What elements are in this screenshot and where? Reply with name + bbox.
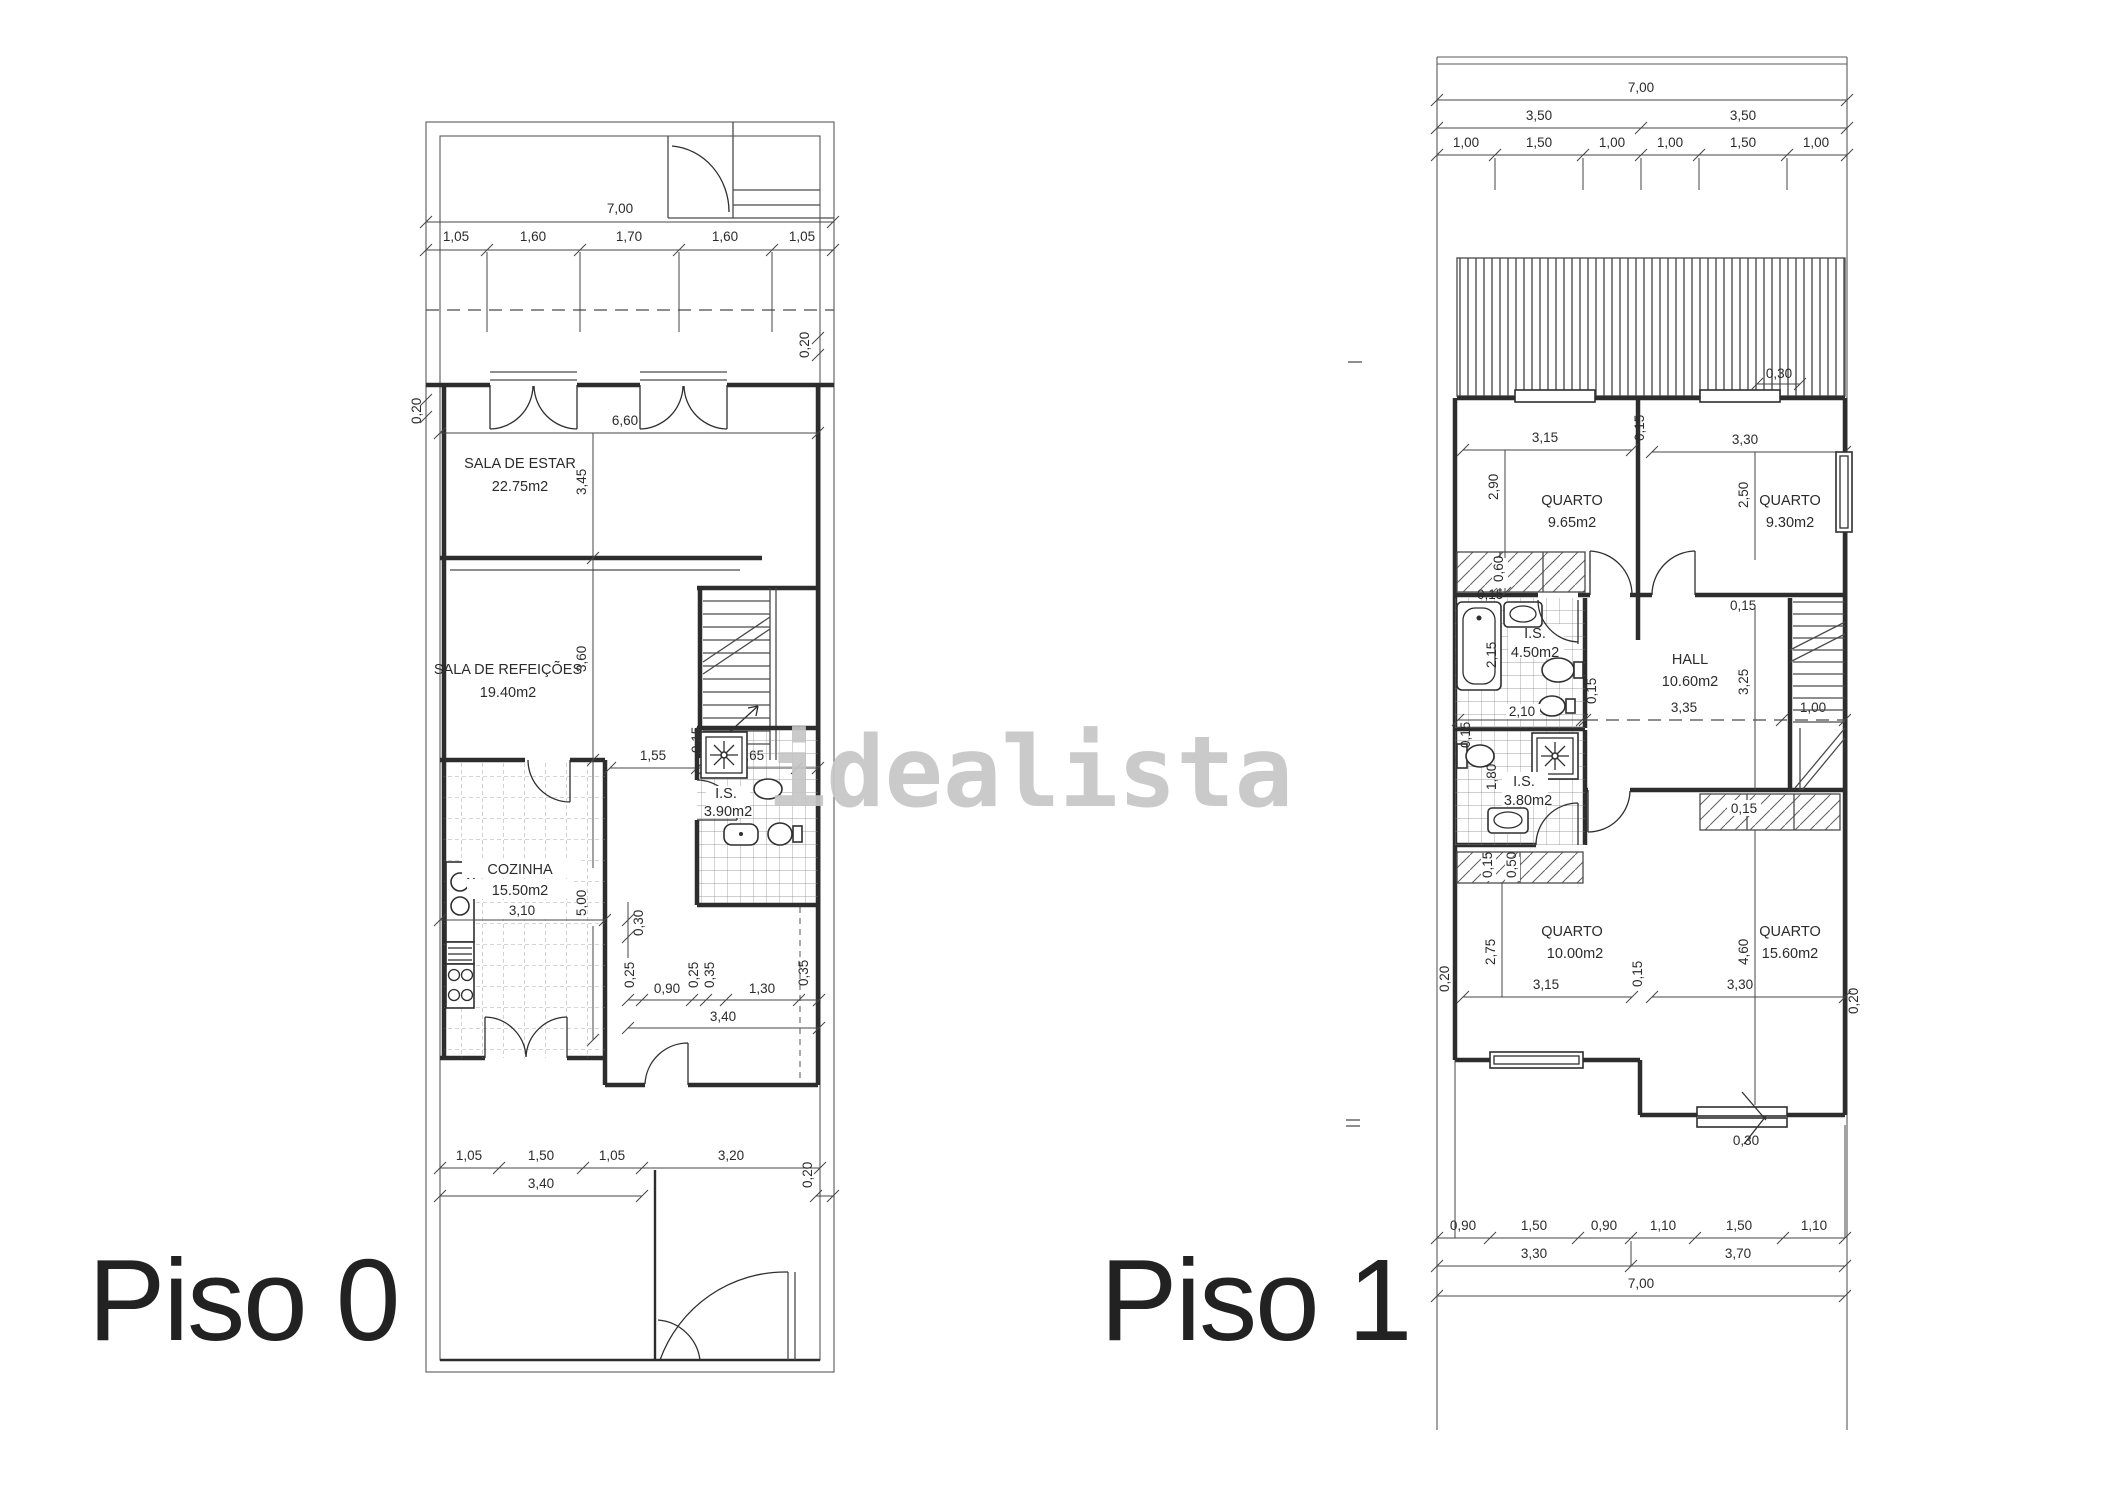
dim-label: 1,05 [443, 229, 469, 244]
window-icon [1490, 1052, 1583, 1068]
room-area: 3.90m2 [704, 804, 752, 820]
room-area: 3.80m2 [1504, 793, 1552, 809]
room-area: 9.30m2 [1766, 515, 1814, 531]
dim-label: 3,30 [1727, 977, 1753, 992]
sink-icon [1504, 602, 1542, 627]
room-label: I.S. [715, 786, 737, 802]
dim-label: 3,25 [1736, 669, 1751, 695]
dim-label: 0,15 [1477, 587, 1503, 602]
dim-label: 1,00 [1657, 135, 1683, 150]
window-icon [1836, 452, 1852, 532]
dim-label: 0,90 [1450, 1218, 1476, 1233]
piso0-title: Piso 0 [88, 1235, 398, 1365]
dim-label: 2,10 [1509, 704, 1535, 719]
room-area: 19.40m2 [480, 685, 536, 701]
dim-label: 0,15 [1458, 722, 1473, 748]
dim-label: 2,75 [1483, 939, 1498, 965]
piso1-quarto4: QUARTO 15.60m2 4,60 3,30 0,20 0,30 [1646, 830, 1861, 1148]
piso0-french-doors [490, 372, 727, 429]
piso1-balcony: 0,30 [1457, 258, 1845, 402]
piso0-patio: 1,05 1,50 1,05 3,20 3,40 0,20 [434, 1148, 839, 1360]
dim-label: 1,10 [1650, 1218, 1676, 1233]
piso1-stairs [1790, 598, 1845, 790]
piso1-closet4: 0,15 [1588, 790, 1840, 832]
dim-label: 0,35 [702, 962, 717, 988]
piso1-bathroom2: I.S. 3.80m2 0,15 1,80 [1455, 722, 1585, 845]
room-label: HALL [1672, 652, 1708, 668]
dim-label: 0,50 [1504, 852, 1519, 878]
dim-label: 1,50 [1521, 1218, 1547, 1233]
dim-label: 1,70 [616, 229, 642, 244]
dim-label: 0,15 [1480, 852, 1495, 878]
dim-label: 7,00 [1628, 80, 1654, 95]
dim-label: 1,50 [528, 1148, 554, 1163]
dim-label: 1,05 [599, 1148, 625, 1163]
room-label: SALA DE REFEIÇÕES [434, 661, 582, 678]
dim-label: 0,25 [622, 962, 637, 988]
piso1-closet1: 0,60 [1457, 552, 1585, 592]
dim-label: 1,55 [640, 748, 666, 763]
dim-label: 3,30 [1732, 432, 1758, 447]
dim-label: 0,60 [1491, 556, 1506, 582]
room-area: 15.50m2 [492, 883, 548, 899]
piso0-kitchen: COZINHA 15.50m2 3,10 [434, 760, 611, 1058]
piso1-title: Piso 1 [1100, 1235, 1410, 1365]
dim-label: 0,20 [1846, 988, 1861, 1014]
piso1-quarto3: QUARTO 10.00m2 2,75 3,15 0,15 0,20 [1437, 883, 1645, 1068]
floorplan-drawing: 7,00 1,05 1,60 1,70 1,60 1,05 0,20 0,20 … [0, 0, 2114, 1510]
dim-label: 1,50 [1730, 135, 1756, 150]
dim-label: 0,90 [1591, 1218, 1617, 1233]
dim-label: 3,50 [1730, 108, 1756, 123]
dim-label: 3,45 [574, 469, 589, 495]
dim-label: 0,25 [686, 962, 701, 988]
dim-label: 1,00 [1800, 700, 1826, 715]
room-label: COZINHA [487, 862, 553, 878]
dim-label: 4,60 [1736, 939, 1751, 965]
dim-label: 1,00 [1599, 135, 1625, 150]
dim-label: 3,15 [1532, 430, 1558, 445]
dim-label: 0,15 [1632, 415, 1647, 441]
piso1-bathroom1: I.S. 4.50m2 0,15 2,15 2,10 0,15 [1452, 587, 1599, 728]
dim-label: 0,20 [1437, 966, 1452, 992]
dim-label: 1,50 [1526, 135, 1552, 150]
room-label: I.S. [1513, 774, 1535, 790]
dim-label: 3,30 [1521, 1246, 1547, 1261]
dim-label: 1,80 [1484, 764, 1499, 790]
dim-label: 1,60 [520, 229, 546, 244]
dim-label: 0,20 [409, 398, 424, 424]
dim-label: 0,90 [654, 981, 680, 996]
dim-label: 1,00 [1803, 135, 1829, 150]
dim-label: 0,15 [1584, 678, 1599, 704]
dim-label: 1,60 [712, 229, 738, 244]
sink-icon [1488, 808, 1528, 833]
dim-label: 1,30 [749, 981, 775, 996]
piso1-quarto2: 3,30 2,50 QUARTO 9.30m2 [1646, 432, 1852, 595]
dim-label: 6,60 [612, 413, 638, 428]
dim-label: 3,50 [1526, 108, 1552, 123]
room-label: QUARTO [1541, 924, 1603, 940]
dim-label: 3,40 [710, 1009, 736, 1024]
dim-label: 0,30 [631, 910, 646, 936]
dim-label: 3,20 [718, 1148, 744, 1163]
dim-label: 3,40 [528, 1176, 554, 1191]
piso0-top-dims: 7,00 1,05 1,60 1,70 1,60 1,05 [420, 201, 839, 332]
dim-label: 3,15 [1533, 977, 1559, 992]
piso1-closet3: 0,15 0,50 [1457, 852, 1583, 883]
room-label: QUARTO [1759, 493, 1821, 509]
dim-label: 2,15 [1484, 642, 1499, 668]
window-icon [1697, 1107, 1787, 1116]
room-label: QUARTO [1759, 924, 1821, 940]
shower-icon [701, 732, 747, 778]
room-label: QUARTO [1541, 493, 1603, 509]
dim-label: 7,00 [607, 201, 633, 216]
room-area: 10.60m2 [1662, 674, 1718, 690]
dim-label: 1,05 [789, 229, 815, 244]
piso0-lower-dims: 0,30 0,25 0,90 0,25 0,35 1,30 0,35 3,40 [622, 902, 825, 1085]
dim-label: 7,00 [1628, 1276, 1654, 1291]
room-label: I.S. [1524, 626, 1546, 642]
dim-label: 0,15 [1630, 961, 1645, 987]
dim-label: 1,50 [1726, 1218, 1752, 1233]
dim-label: 1,05 [456, 1148, 482, 1163]
dim-label: 0,30 [1733, 1133, 1759, 1148]
dim-label: 0,15 [1730, 598, 1756, 613]
piso1-hall: HALL 10.60m2 0,15 3,35 1,00 3,25 [1579, 598, 1851, 790]
dim-label: 0,35 [796, 960, 811, 986]
dim-label: 0,30 [1766, 366, 1792, 381]
dim-label: 0,20 [797, 332, 812, 358]
dim-label: 1,10 [1801, 1218, 1827, 1233]
dim-label: 3,10 [509, 903, 535, 918]
dim-label: 2,90 [1486, 474, 1501, 500]
room-label: SALA DE ESTAR [464, 456, 576, 472]
piso1-plan: 7,00 3,50 3,50 1,00 1,50 1,00 1,00 1,50 … [1346, 57, 1861, 1430]
room-area: 9.65m2 [1548, 515, 1596, 531]
dim-label: 1,00 [1453, 135, 1479, 150]
dim-label: 2,50 [1736, 482, 1751, 508]
room-area: 22.75m2 [492, 479, 548, 495]
dim-label: 3,70 [1725, 1246, 1751, 1261]
room-area: 10.00m2 [1547, 946, 1603, 962]
floorplan-canvas: 7,00 1,05 1,60 1,70 1,60 1,05 0,20 0,20 … [0, 0, 2114, 1510]
dim-label: 0,20 [800, 1162, 815, 1188]
dim-label: 0,15 [1731, 801, 1757, 816]
room-area: 15.60m2 [1762, 946, 1818, 962]
dim-label: 3,35 [1671, 700, 1697, 715]
idealista-watermark: idealista [768, 716, 1293, 830]
